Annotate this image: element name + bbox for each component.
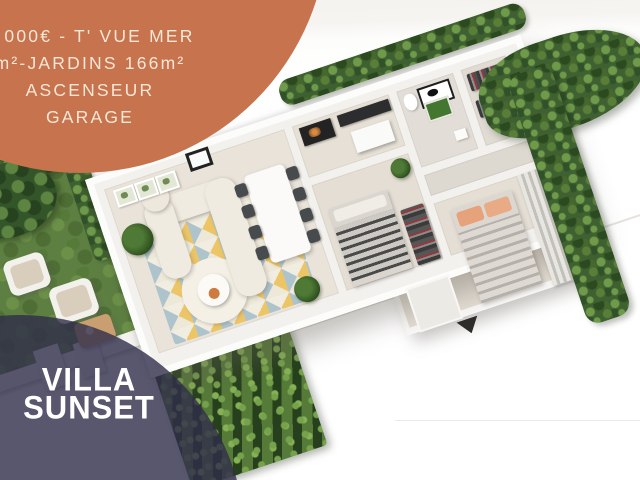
poster: VILLA SUNSET 0 000€ - T' VUE MER m²-JARD… <box>0 0 640 480</box>
price-line: GARAGE <box>0 104 310 131</box>
title-line: SUNSET <box>8 393 170 422</box>
price-line: m²-JARDINS 166m² <box>0 50 310 77</box>
project-name: VILLA SUNSET <box>8 366 170 422</box>
price-line: 0 000€ - T' VUE MER <box>0 23 310 50</box>
terrace-edge-far <box>395 420 640 421</box>
price-line: ASCENSEUR <box>0 77 310 104</box>
price-badge-text: 0 000€ - T' VUE MER m²-JARDINS 166m² ASC… <box>0 23 310 131</box>
